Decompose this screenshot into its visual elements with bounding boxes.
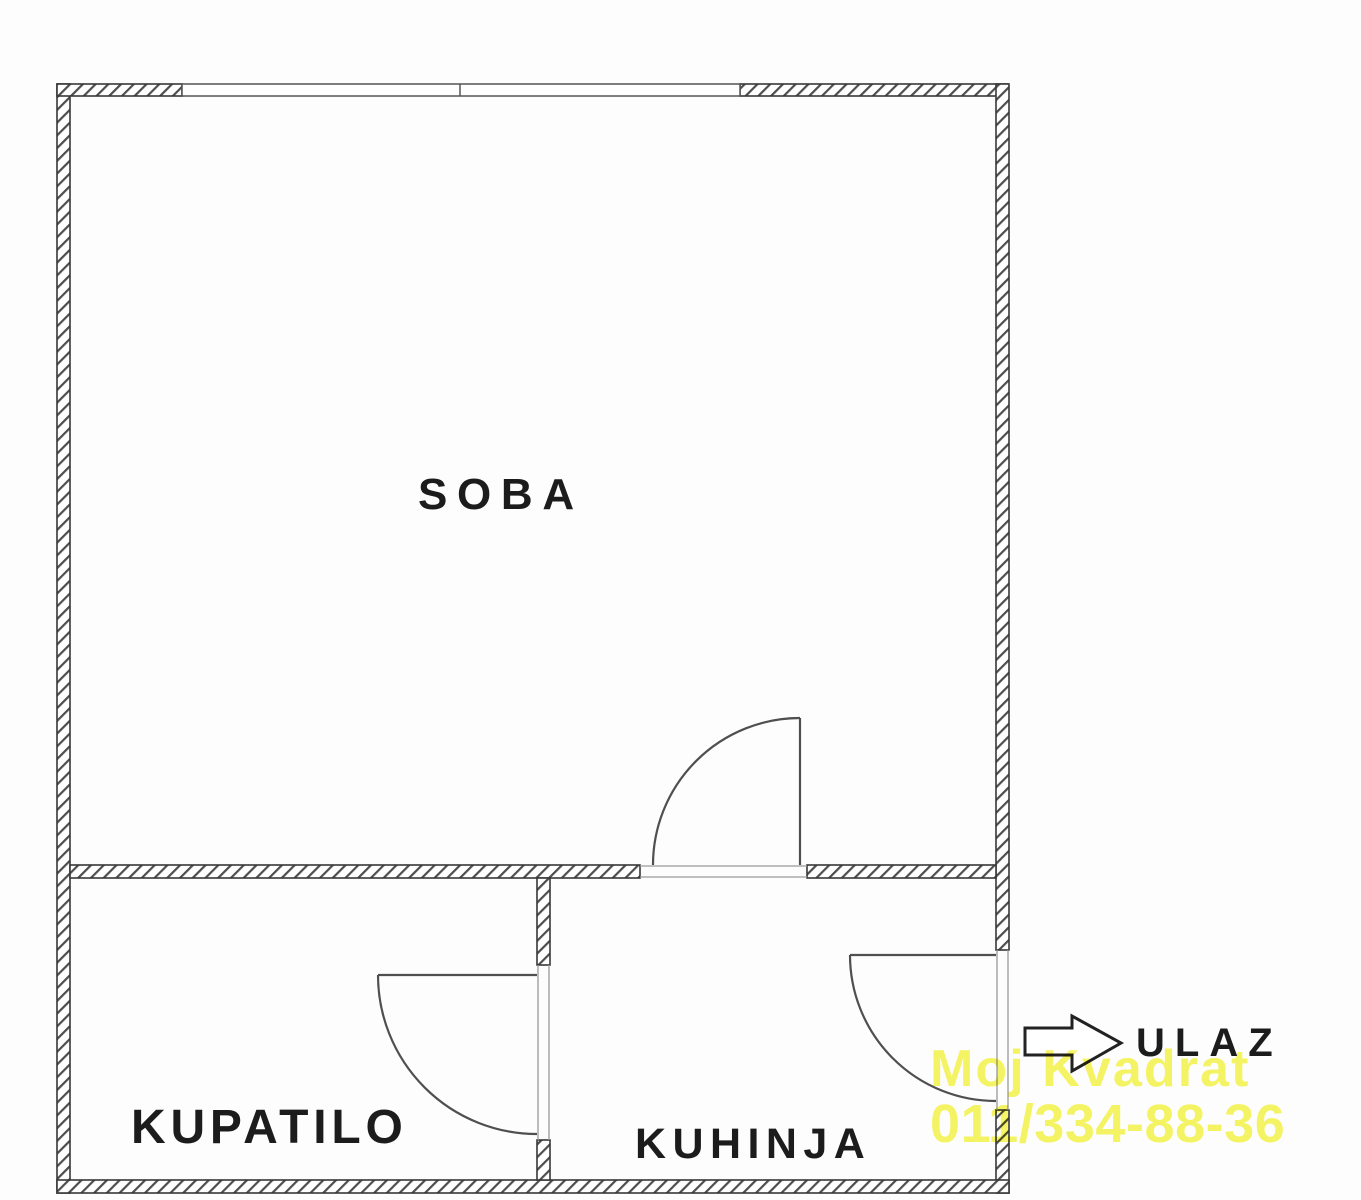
room-label-kuhinja: KUHINJA: [635, 1120, 871, 1169]
floor-plan-canvas: SOBA KUPATILO KUHINJA ULAZ Moj Kvadrat 0…: [0, 0, 1361, 1200]
wall-top-right: [740, 84, 1008, 96]
window: [182, 84, 740, 96]
watermark-phone-number: 011/334-88-36: [930, 1096, 1285, 1152]
wall-right-upper: [996, 84, 1009, 950]
floor-plan-drawing: [0, 0, 1361, 1200]
wall-vertical-lower: [537, 1140, 550, 1180]
wall-bottom: [57, 1180, 1009, 1193]
doors: [378, 718, 996, 1134]
wall-divider-right: [807, 865, 996, 878]
watermark-agency-name: Moj Kvadrat: [930, 1042, 1285, 1096]
room-label-soba: SOBA: [418, 470, 584, 520]
wall-top-left: [57, 84, 182, 96]
wall-vertical-upper: [537, 878, 550, 965]
wall-divider-left: [70, 865, 640, 878]
watermark: Moj Kvadrat 011/334-88-36: [930, 1042, 1285, 1152]
soba-door: [653, 718, 800, 865]
outer-walls: [57, 84, 1009, 1193]
room-label-kupatilo: KUPATILO: [131, 1100, 408, 1155]
wall-left: [57, 84, 70, 1193]
